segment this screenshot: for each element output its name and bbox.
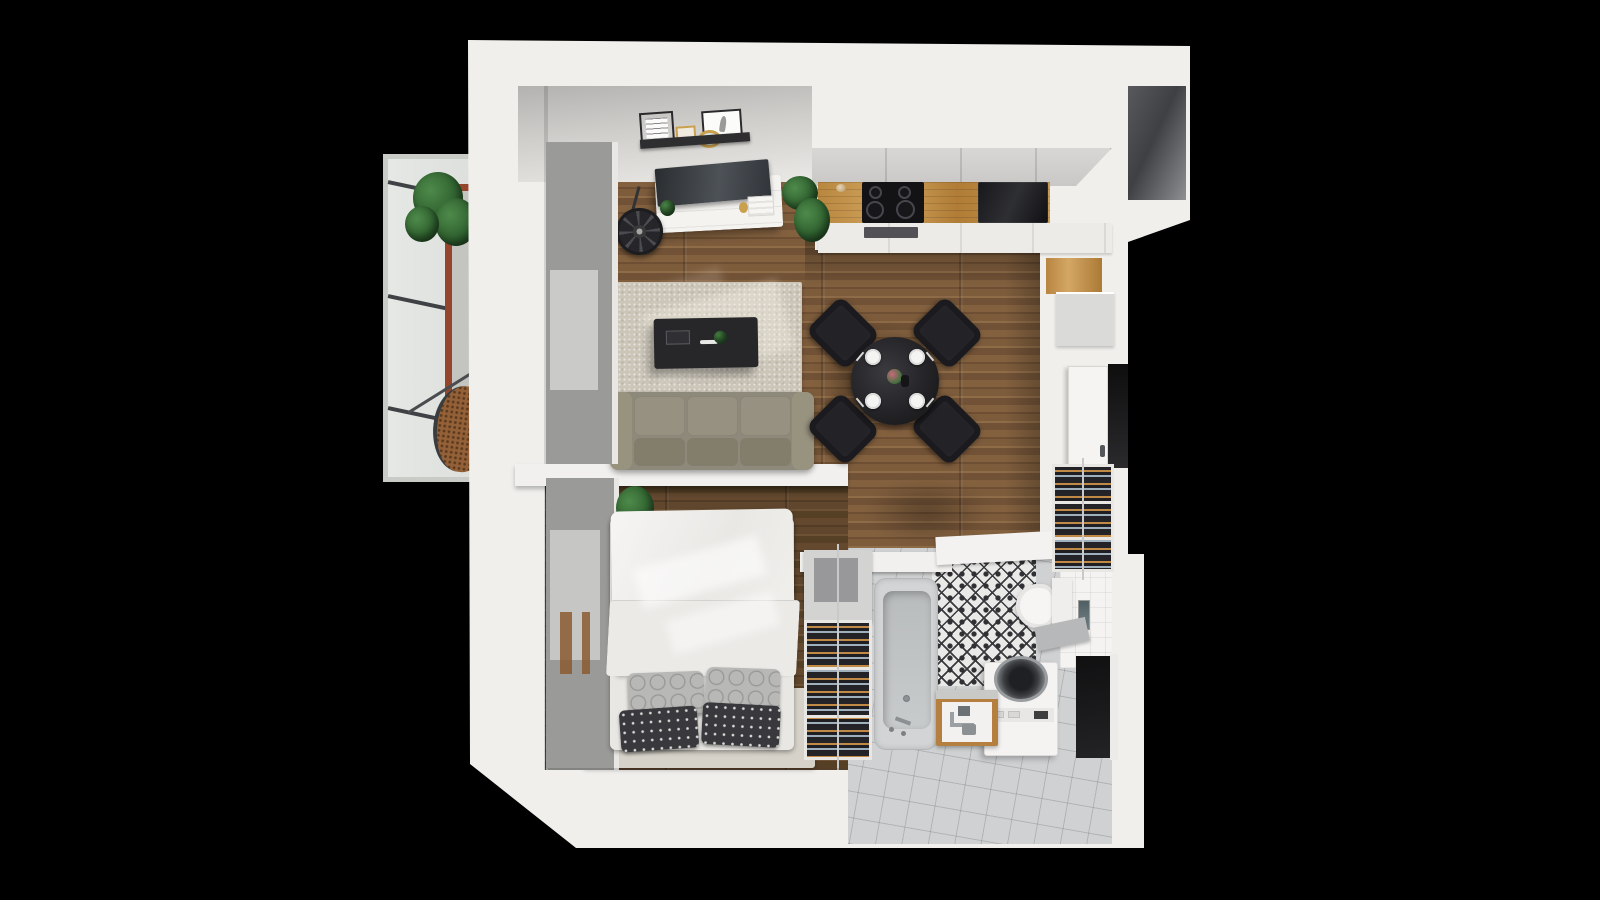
kitchen-upper-cabinets [812, 148, 1112, 186]
vanity-top [936, 690, 998, 699]
dark-bottle [901, 375, 909, 387]
washer-button [1008, 711, 1020, 718]
dining-table [851, 337, 939, 425]
vanity-sink [958, 706, 970, 716]
bathtub [874, 578, 938, 750]
shelf-pole [837, 544, 839, 770]
tub-basin [883, 591, 931, 729]
coffee-table [654, 317, 759, 369]
column-shadow [1005, 250, 1040, 556]
sheer-curtain [550, 270, 598, 390]
sofa-back-cushion [740, 438, 791, 466]
tub-knob [901, 731, 906, 736]
feather-art [719, 116, 727, 133]
floorplan-render [0, 0, 1600, 900]
flower-centerpiece [887, 369, 902, 384]
notebook [666, 330, 690, 344]
wall-seam [548, 768, 848, 770]
pillow-polka-dot [619, 705, 700, 752]
shelf-cabinet-inset [814, 558, 858, 602]
floor-fan [616, 208, 663, 255]
book-stack [747, 195, 774, 216]
tall-cabinet-wood-front [1046, 258, 1102, 294]
washer-drum [994, 656, 1048, 702]
fan-hub [633, 225, 646, 238]
tub-drain [903, 695, 910, 702]
induction-cooktop [862, 182, 924, 223]
counter-bowl [836, 184, 846, 192]
door-handle [1100, 445, 1105, 457]
sofa-seat [634, 396, 685, 436]
vanity-faucet [962, 724, 976, 735]
tub-knob [889, 727, 894, 732]
balcony-plant-leaves [405, 206, 439, 242]
window-frame-wood [582, 612, 590, 674]
kitchen-base-cabinets [818, 223, 1112, 253]
pillow-polka-dot [701, 702, 781, 748]
sofa-seat [740, 396, 791, 436]
entrance-door-edge [1110, 654, 1118, 760]
sofa-back-cushion [634, 438, 685, 466]
gold-candle [739, 202, 748, 213]
kitchen-sink [978, 182, 1048, 223]
window-sill [612, 142, 618, 464]
window-frame-wood [560, 612, 572, 674]
table-plant [714, 331, 727, 344]
washer-display [1034, 711, 1048, 719]
entrance-doorway [1076, 656, 1110, 758]
rack-pole [1082, 458, 1084, 580]
oven-front [864, 227, 918, 238]
sofa-seat [687, 396, 738, 436]
doorway-gap [1108, 364, 1128, 468]
sink-vanity [936, 690, 998, 746]
large-plant-leaves [794, 198, 830, 242]
sofa [610, 392, 814, 470]
grey-appliance-front [1056, 292, 1114, 346]
wardrobe-door [1068, 366, 1108, 466]
sheer-curtain [550, 530, 600, 660]
wall-niche [1128, 86, 1186, 200]
sofa-back-cushion [687, 438, 738, 466]
console-plant [660, 200, 675, 216]
